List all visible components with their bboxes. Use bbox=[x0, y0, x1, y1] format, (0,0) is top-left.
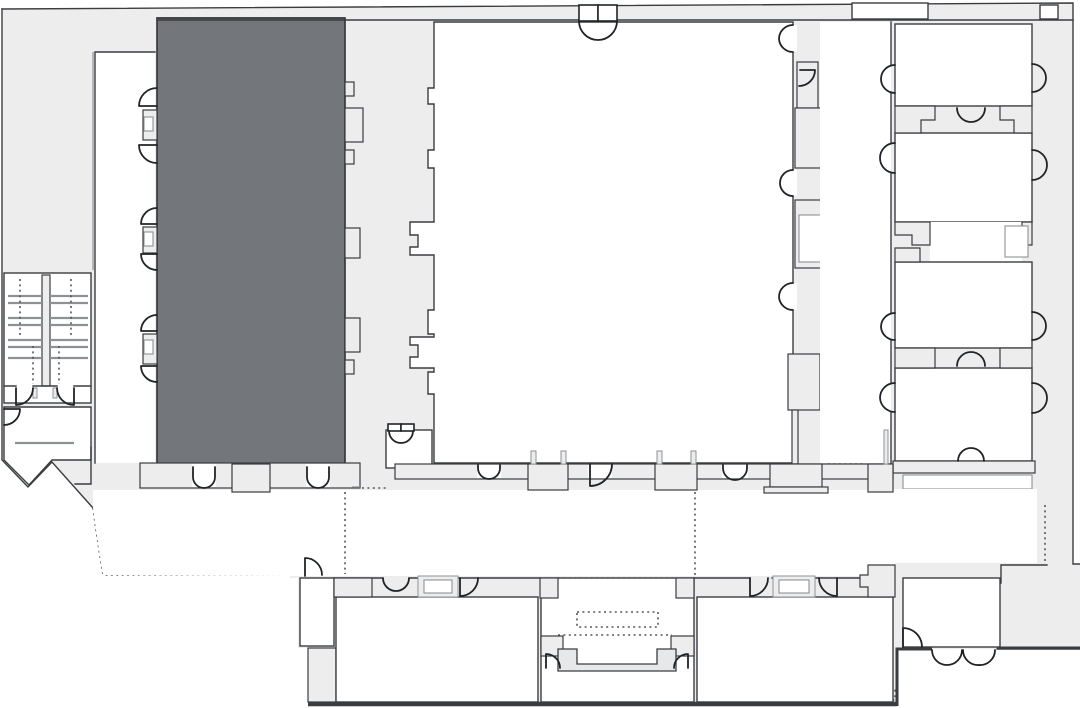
north-vestibule bbox=[386, 424, 432, 468]
northeast-room-2[interactable] bbox=[895, 133, 1032, 222]
east-rooms bbox=[880, 24, 1047, 473]
stair-divider-wall bbox=[42, 275, 50, 386]
north-notch bbox=[1040, 5, 1058, 19]
north-door-leaf bbox=[579, 5, 598, 21]
southeast-room-2[interactable] bbox=[895, 368, 1032, 461]
highlighted-room-group bbox=[139, 18, 363, 465]
southeast-exterior-doors bbox=[932, 650, 995, 665]
floor-plan bbox=[0, 0, 1080, 708]
main-hall-group bbox=[410, 22, 797, 463]
stairwell-block bbox=[4, 273, 91, 405]
north-bay bbox=[852, 3, 928, 19]
highlighted-room-east-niches bbox=[345, 82, 363, 374]
south-wing-room-west[interactable] bbox=[336, 597, 538, 702]
highlighted-room[interactable] bbox=[157, 18, 345, 465]
south-wing-room-east[interactable] bbox=[697, 597, 893, 702]
northeast-room-1[interactable] bbox=[895, 24, 1032, 106]
north-vestibule-floor bbox=[386, 430, 432, 468]
south-vestibule bbox=[300, 578, 334, 646]
lobby-floor bbox=[93, 490, 895, 576]
southeast-entry[interactable] bbox=[903, 578, 1000, 647]
main-hall[interactable] bbox=[410, 22, 793, 463]
north-door-leaf bbox=[598, 5, 617, 21]
southeast-room-1[interactable] bbox=[895, 262, 1032, 348]
